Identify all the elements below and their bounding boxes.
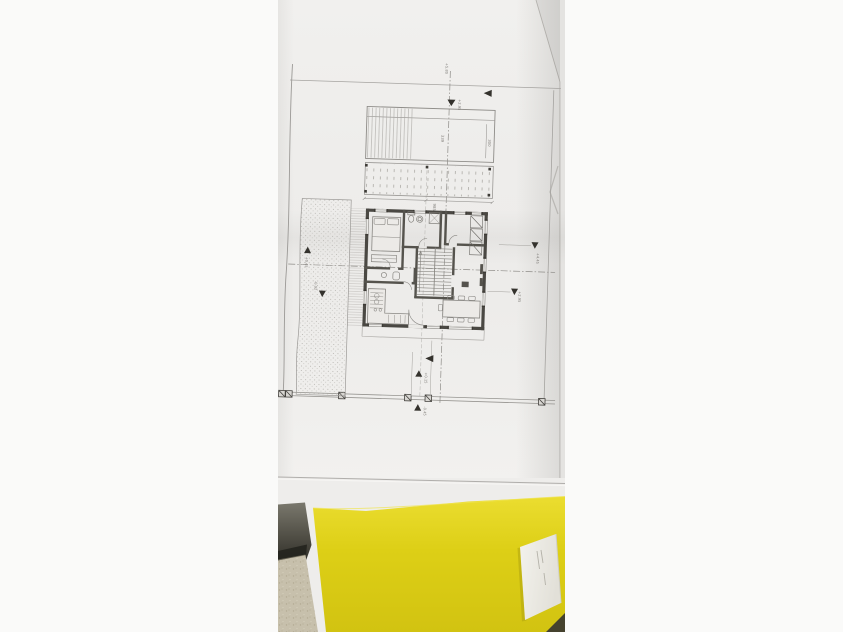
level-label-top: +2.95 xyxy=(457,99,461,110)
level-label-right-lower: +2.95 xyxy=(517,291,521,302)
bedroom-bed xyxy=(372,217,401,252)
photo-canvas: 300 339 985 xyxy=(0,0,843,632)
level-label-bottom-upper: +0.15 xyxy=(424,372,428,383)
dim-terrace-depth: 300 xyxy=(487,139,492,147)
level-label-top-axis: +5.80 xyxy=(444,63,448,75)
dim-terrace-width: 339 xyxy=(440,135,445,143)
dim-deck-width: 985 xyxy=(432,204,437,212)
left-terrace-strip xyxy=(295,198,351,395)
level-label-right-upper: +4.45 xyxy=(535,253,539,264)
floor-plan-photo: 300 339 985 xyxy=(278,0,565,632)
level-label-bottom-lower: -0.45 xyxy=(423,406,427,415)
level-label-left-upper: +0.45 xyxy=(304,257,308,268)
photo-graphic: 300 339 985 xyxy=(278,0,565,632)
level-label-left-lower: -0.02 xyxy=(313,281,317,290)
desk-scene xyxy=(278,477,565,632)
